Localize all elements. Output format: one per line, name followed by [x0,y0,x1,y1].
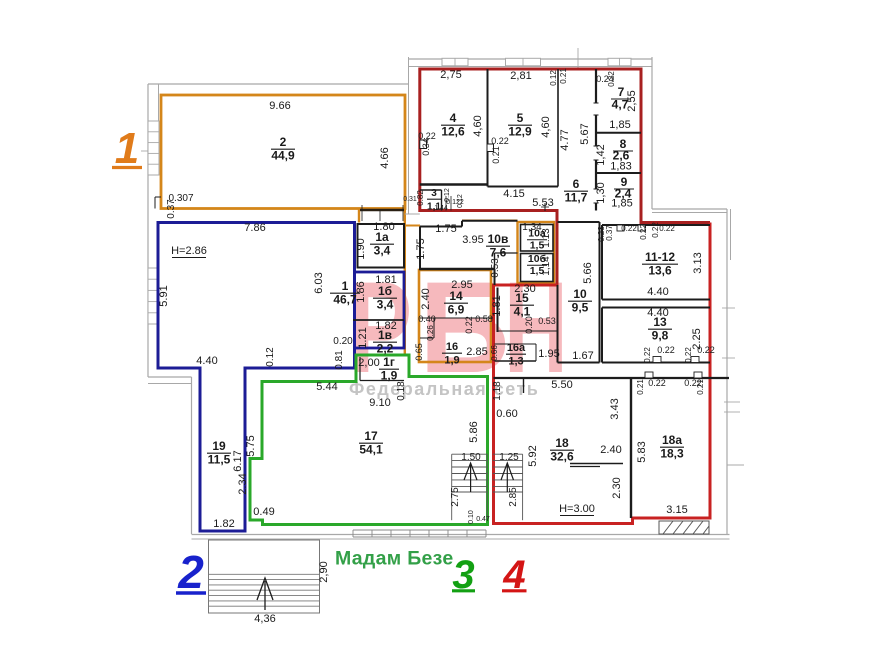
svg-text:4,60: 4,60 [472,115,484,136]
svg-text:1,3: 1,3 [508,356,523,368]
svg-text:4.15: 4.15 [503,188,524,200]
svg-text:1: 1 [115,124,139,173]
svg-text:1.81: 1.81 [375,274,396,286]
svg-text:1.75: 1.75 [415,238,427,259]
svg-text:0.22: 0.22 [643,347,652,363]
svg-text:0.82: 0.82 [416,190,425,206]
svg-text:11,5: 11,5 [208,453,231,467]
svg-text:18а: 18а [662,433,682,447]
svg-text:5.83: 5.83 [636,441,648,462]
svg-text:1.90: 1.90 [355,238,367,259]
svg-text:1г: 1г [383,355,395,369]
svg-text:5.75: 5.75 [245,435,257,456]
svg-text:3.15: 3.15 [666,504,687,516]
svg-text:2,75: 2,75 [440,69,461,81]
svg-text:1.50: 1.50 [461,452,481,463]
svg-text:9,5: 9,5 [572,301,589,315]
svg-text:0.49: 0.49 [253,506,274,518]
svg-text:1.18: 1.18 [492,381,503,401]
svg-text:1б: 1б [378,284,392,298]
svg-text:0.40: 0.40 [418,314,436,324]
svg-text:1.80: 1.80 [373,221,394,233]
svg-text:4,60: 4,60 [540,116,552,137]
svg-text:4.77: 4.77 [559,129,571,150]
svg-text:12,6: 12,6 [441,125,465,139]
svg-text:0.22: 0.22 [639,224,648,240]
svg-text:4.40: 4.40 [647,286,668,298]
svg-text:54,1: 54,1 [359,443,383,457]
svg-text:2.34: 2.34 [237,473,249,494]
svg-text:16а: 16а [507,342,526,354]
svg-text:4.40: 4.40 [647,307,668,319]
svg-text:H=3.00: H=3.00 [559,503,595,515]
svg-text:1.82: 1.82 [375,320,396,332]
svg-text:10: 10 [573,287,587,301]
svg-text:0.53: 0.53 [490,258,501,278]
svg-text:0.47: 0.47 [476,516,490,523]
svg-text:1.25: 1.25 [499,452,519,463]
svg-text:5.91: 5.91 [158,285,170,306]
svg-text:1: 1 [342,279,349,293]
svg-text:6.03: 6.03 [313,272,325,293]
svg-text:3,4: 3,4 [374,244,391,258]
svg-text:0.10: 0.10 [468,510,475,524]
svg-text:1,42: 1,42 [595,144,607,165]
svg-text:13,6: 13,6 [648,264,672,278]
svg-text:6.17: 6.17 [232,450,244,471]
svg-text:1,30: 1,30 [595,182,607,203]
svg-text:44,9: 44,9 [271,149,295,163]
svg-text:0.37: 0.37 [166,199,177,219]
svg-text:0.21: 0.21 [696,379,705,395]
svg-text:0.53: 0.53 [538,316,556,326]
svg-text:3.13: 3.13 [692,252,704,273]
svg-text:2.75: 2.75 [450,487,461,507]
svg-text:0.20: 0.20 [524,316,534,334]
svg-text:Мадам Безе: Мадам Безе [335,548,454,570]
svg-text:4.66: 4.66 [379,147,391,168]
svg-text:0.37: 0.37 [605,225,614,241]
svg-text:14: 14 [449,289,463,303]
svg-text:2.85: 2.85 [466,346,487,358]
svg-text:2,90: 2,90 [318,561,330,582]
svg-text:0.81: 0.81 [334,350,345,370]
svg-text:1.21: 1.21 [357,327,369,348]
svg-text:2.30: 2.30 [611,477,623,498]
svg-text:1.81: 1.81 [491,295,503,316]
svg-text:46,7: 46,7 [333,293,357,307]
svg-text:4: 4 [450,111,457,125]
svg-text:1,85: 1,85 [609,119,630,131]
svg-text:0.66: 0.66 [490,345,499,361]
svg-text:2: 2 [280,135,287,149]
svg-text:7.86: 7.86 [244,222,265,234]
svg-text:1,85: 1,85 [611,198,632,210]
svg-text:16: 16 [446,341,458,353]
svg-text:0.12: 0.12 [265,347,276,367]
svg-text:5: 5 [517,111,524,125]
svg-text:1.67: 1.67 [572,350,593,362]
svg-text:4.40: 4.40 [196,355,217,367]
svg-text:0.31: 0.31 [403,196,417,203]
svg-text:2,2: 2,2 [377,342,394,356]
svg-text:17: 17 [364,429,378,443]
svg-text:1.34: 1.34 [522,222,542,233]
svg-text:2,81: 2,81 [510,70,531,82]
svg-text:1.86: 1.86 [355,281,367,302]
svg-text:1.13: 1.13 [541,228,552,248]
svg-text:9.10: 9.10 [369,397,390,409]
svg-text:0.22: 0.22 [697,345,715,355]
svg-text:0.22: 0.22 [659,224,675,233]
svg-text:5.50: 5.50 [551,379,572,391]
svg-text:0.21: 0.21 [491,146,501,164]
svg-text:0.22: 0.22 [621,224,637,233]
svg-text:9.66: 9.66 [269,100,290,112]
svg-text:6,9: 6,9 [448,303,465,317]
svg-text:5.67: 5.67 [579,123,591,144]
svg-text:1.75: 1.75 [435,223,456,235]
svg-text:1,14: 1,14 [541,256,552,276]
svg-text:2.40: 2.40 [420,288,432,309]
svg-text:2,55: 2,55 [626,90,638,111]
svg-text:3.43: 3.43 [609,398,621,419]
svg-text:2.30: 2.30 [514,283,535,295]
svg-text:0.12: 0.12 [457,194,464,208]
svg-text:0.22: 0.22 [607,71,616,87]
svg-text:H=2.86: H=2.86 [171,245,207,257]
svg-text:9,8: 9,8 [652,329,669,343]
svg-text:0.26: 0.26 [426,325,435,341]
svg-text:5.92: 5.92 [527,445,539,466]
svg-text:0.21: 0.21 [559,68,568,84]
svg-text:0.21: 0.21 [636,379,645,395]
svg-text:0.34: 0.34 [421,138,431,156]
svg-text:11-12: 11-12 [645,250,675,264]
svg-text:0.65: 0.65 [414,343,424,361]
svg-text:0.12: 0.12 [549,70,558,86]
svg-text:10в: 10в [488,232,509,246]
svg-text:11,7: 11,7 [565,191,588,205]
svg-text:0.22: 0.22 [491,136,509,146]
svg-text:2.95: 2.95 [451,279,472,291]
svg-text:0.22: 0.22 [648,378,666,388]
svg-text:3: 3 [431,188,437,199]
svg-text:5.44: 5.44 [316,381,337,393]
svg-text:12,9: 12,9 [508,125,532,139]
svg-text:2.40: 2.40 [600,444,621,456]
svg-text:0.22: 0.22 [684,347,693,363]
svg-text:5.86: 5.86 [468,421,480,442]
svg-text:1,83: 1,83 [610,161,631,173]
svg-text:7,6: 7,6 [490,246,507,260]
svg-text:19: 19 [212,439,226,453]
svg-text:1.44: 1.44 [434,205,448,212]
svg-text:18,3: 18,3 [660,447,684,461]
svg-text:2.85: 2.85 [508,487,519,507]
svg-text:0.60: 0.60 [496,408,517,420]
svg-text:1,9: 1,9 [444,355,459,367]
svg-text:4,36: 4,36 [254,613,275,625]
svg-text:3.95: 3.95 [462,234,483,246]
svg-text:2: 2 [177,546,204,598]
svg-text:3,4: 3,4 [377,298,394,312]
svg-text:0.20: 0.20 [333,336,353,347]
svg-text:6: 6 [573,177,580,191]
svg-text:Федеральная сеть: Федеральная сеть [349,379,539,399]
svg-text:1.82: 1.82 [213,518,234,530]
svg-text:1,9: 1,9 [381,369,398,383]
svg-text:2,00: 2,00 [358,357,379,369]
svg-text:0.18: 0.18 [396,381,407,401]
svg-text:0.22: 0.22 [464,316,474,334]
svg-text:1.95: 1.95 [538,348,559,360]
svg-text:0.22: 0.22 [657,345,675,355]
svg-text:32,6: 32,6 [550,450,574,464]
svg-text:5.66: 5.66 [582,262,594,283]
svg-text:18: 18 [555,436,569,450]
